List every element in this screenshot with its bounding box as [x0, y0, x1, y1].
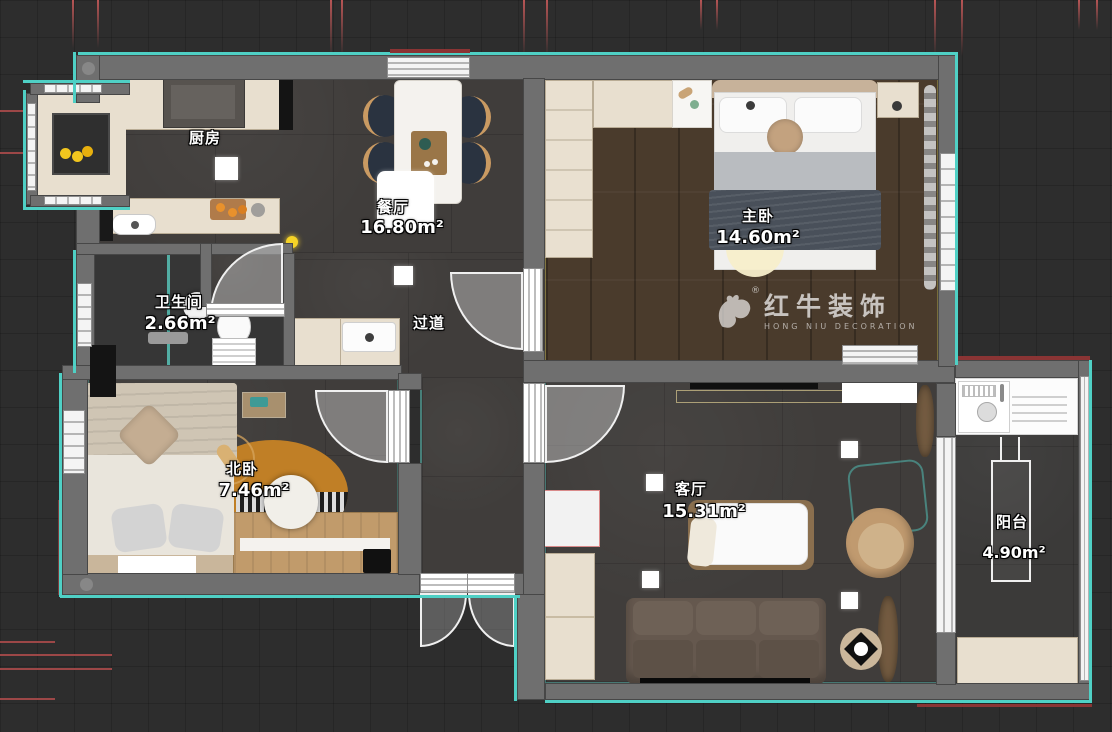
round-cushion — [767, 119, 803, 155]
plant — [916, 385, 934, 457]
master-door-leaf — [523, 268, 543, 352]
red-line-bottom-balcony — [917, 704, 1092, 707]
wall-top — [78, 55, 956, 80]
wall-balcony-window-stub-bottom — [936, 630, 956, 685]
construction-tick — [546, 0, 548, 56]
construction-tick — [0, 698, 55, 700]
north-pillow-gray — [110, 503, 168, 554]
ceiling-light — [215, 157, 238, 180]
wall-balcony-window-stub-top — [936, 383, 956, 437]
sofa-seat-cushion — [696, 640, 756, 678]
bathroom-label: 卫生间 — [140, 291, 218, 312]
ceiling-light — [394, 266, 413, 285]
teal-edge-bay-bottom — [23, 207, 130, 210]
dining-tray — [411, 131, 447, 175]
sofa-back-cushion — [633, 601, 693, 635]
washer-black — [90, 345, 116, 397]
wall-entry-vertical — [517, 593, 545, 700]
wall-north-right-top — [398, 373, 422, 390]
drying-lines — [1012, 396, 1067, 422]
ceiling-light — [841, 441, 858, 458]
ceiling-light — [841, 592, 858, 609]
sofa-back-cushion — [759, 601, 819, 635]
north-bed-card — [118, 556, 196, 573]
tray-plant — [419, 138, 431, 150]
construction-tick — [700, 0, 702, 30]
fruit — [216, 203, 225, 212]
balcony-label: 阳台 — [988, 511, 1036, 532]
north-door-leaf — [388, 390, 410, 463]
construction-tick — [72, 0, 74, 48]
master-sill-window — [842, 345, 918, 365]
bull-logo-icon: ® — [712, 290, 758, 334]
living-label: 客厅 — [666, 478, 716, 499]
cabinet-white — [842, 383, 917, 403]
bay-window-bottom — [44, 196, 102, 205]
wall-balcony-top — [955, 360, 1092, 378]
pillow-dot — [746, 101, 755, 110]
shoe-cabinet — [545, 553, 595, 680]
construction-tick — [97, 0, 99, 48]
side-table-center — [854, 642, 868, 656]
construction-tick — [341, 0, 343, 56]
watermark-brand: 红牛装饰 — [764, 294, 918, 319]
entry-cabinet-white — [543, 490, 600, 547]
construction-tick — [330, 0, 332, 56]
dining-window — [387, 57, 470, 78]
bathroom-window — [77, 283, 92, 347]
wall-bottom-living — [545, 683, 1092, 700]
wall-bottom-north — [62, 573, 420, 595]
hallway-label: 过道 — [405, 312, 453, 333]
plant — [878, 596, 898, 682]
corner-joint-dot — [82, 62, 95, 75]
corner-joint-dot — [80, 578, 93, 591]
rack-hanger — [1018, 437, 1020, 461]
stove-flame-dots — [60, 148, 71, 159]
rack-hanger — [1000, 437, 1002, 461]
master-cabinet-top — [593, 80, 673, 128]
washer-panel — [962, 385, 996, 397]
kitchen-tall-cabinet — [279, 80, 293, 130]
north-pillow-gray — [167, 503, 225, 554]
teal-edge-kitchen-left — [73, 52, 76, 103]
wall-hall-living — [523, 463, 545, 595]
table-throw — [687, 517, 718, 567]
entry-door-leaf-right — [467, 573, 515, 593]
vanity-drain — [365, 333, 374, 342]
living-area: 15.31m² — [652, 501, 756, 522]
nightstand-decor — [250, 397, 268, 407]
teal-edge-balcony-right — [1089, 360, 1092, 703]
bed-sheet-gray — [714, 152, 876, 192]
wall-north-left — [62, 373, 88, 575]
teal-edge-bay — [23, 90, 26, 208]
red-line-balcony-top — [958, 356, 1090, 360]
living-balcony-window — [936, 437, 956, 633]
living-door-leaf — [523, 383, 545, 463]
teal-edge-entry — [514, 595, 517, 701]
wall-master-left — [523, 78, 545, 270]
sofa-back-cushion — [696, 601, 756, 635]
master-window — [940, 153, 956, 291]
teal-edge-top — [78, 52, 958, 55]
nightstand-knob — [892, 101, 902, 111]
teal-edge-bath-left — [73, 250, 76, 373]
red-line-top-window — [390, 49, 470, 53]
ceiling-light — [642, 571, 659, 588]
vanity-divider — [340, 318, 341, 368]
teal-edge-master-right — [955, 52, 958, 365]
construction-tick — [961, 0, 963, 56]
teal-edge-north-left — [59, 373, 62, 597]
wall-north-right-bottom — [398, 463, 422, 575]
master-wardrobe — [545, 80, 593, 258]
construction-tick — [1078, 0, 1080, 30]
sofa-seat-cushion — [633, 640, 693, 678]
sink-drain — [131, 221, 139, 229]
kitchen-label: 厨房 — [170, 127, 240, 148]
balcony-area: 4.90m² — [980, 543, 1048, 562]
cutting-board — [210, 199, 246, 220]
cooktop-inner — [171, 85, 235, 119]
bay-stove — [52, 113, 110, 175]
balcony-cabinet — [957, 637, 1078, 687]
entry-door-swing-left — [420, 593, 467, 647]
bay-window-left — [27, 103, 36, 191]
washer-drum — [977, 402, 997, 422]
entry-door-swing-right — [468, 593, 515, 647]
construction-tick — [0, 668, 112, 670]
sofa-seat-cushion — [759, 640, 819, 678]
monitor — [363, 549, 391, 573]
dining-area: 16.80m² — [352, 217, 452, 238]
master-label: 主卧 — [733, 205, 783, 226]
construction-tick — [934, 0, 936, 56]
watermark: ® 红牛装饰 HONG NIU DECORATION — [712, 286, 922, 338]
construction-tick — [0, 654, 112, 656]
toilet-tank — [212, 338, 256, 366]
desk-plant-dot — [690, 100, 699, 109]
registered-mark: ® — [751, 286, 760, 296]
ceiling-light — [646, 474, 663, 491]
north-area: 7.46m² — [208, 480, 300, 501]
pillow — [794, 97, 862, 133]
floorplan-canvas: 厨房 餐厅 16.80m² 主卧 14.60m² 卫生间 2.66m² 过道 北… — [0, 0, 1112, 732]
master-area: 14.60m² — [706, 227, 810, 248]
bathroom-area: 2.66m² — [140, 313, 220, 334]
north-label: 北卧 — [216, 458, 268, 479]
teal-edge-bottom-living — [545, 700, 1092, 703]
dining-label: 餐厅 — [362, 196, 424, 217]
construction-tick — [523, 0, 525, 56]
construction-tick — [716, 0, 718, 30]
teal-edge-bottom-north — [60, 595, 520, 598]
construction-tick — [0, 641, 55, 643]
watermark-subtitle: HONG NIU DECORATION — [764, 322, 918, 331]
teal-edge-bay-top — [23, 80, 130, 83]
armchair-seat — [858, 523, 904, 569]
entry-door-leaf-left — [420, 573, 468, 593]
north-bedroom-window — [63, 410, 85, 474]
nightstand-master — [877, 82, 919, 118]
faucet — [1000, 384, 1004, 402]
curtain — [924, 85, 936, 290]
construction-tick — [1096, 0, 1098, 30]
corner-joint-dot — [251, 203, 265, 217]
